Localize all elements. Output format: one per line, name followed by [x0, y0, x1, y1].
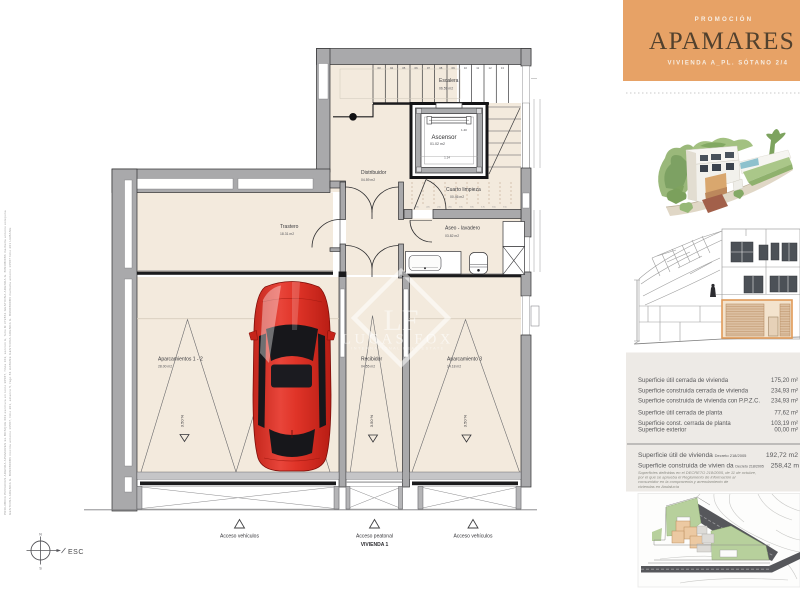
svg-text:Aseo - lavadero: Aseo - lavadero: [445, 226, 480, 232]
svg-text:04.59 m2: 04.59 m2: [361, 178, 375, 182]
svg-text:3.50 %: 3.50 %: [463, 414, 468, 427]
svg-text:192,72 m2: 192,72 m2: [766, 452, 798, 459]
svg-text:08: 08: [439, 66, 443, 70]
svg-text:Superficie construida de vivie: Superficie construida de vivien da Decre…: [638, 463, 764, 470]
svg-text:Superficie exterior: Superficie exterior: [638, 427, 686, 433]
svg-text:3.50 %: 3.50 %: [369, 414, 374, 427]
svg-text:234,93 m²: 234,93 m²: [771, 388, 798, 394]
svg-text:03: 03: [377, 66, 381, 70]
svg-text:3.50 %: 3.50 %: [180, 414, 185, 427]
svg-text:Aparcamiento 3: Aparcamiento 3: [447, 357, 482, 363]
svg-text:Trastero: Trastero: [280, 224, 299, 230]
svg-text:INTERNATIONAL REAL ESTATE: INTERNATIONAL REAL ESTATE: [351, 347, 445, 351]
svg-text:11: 11: [476, 66, 479, 70]
svg-text:VIVIENDA A_PL. SÓTANO 2/4: VIVIENDA A_PL. SÓTANO 2/4: [668, 59, 789, 67]
svg-text:Recibidor: Recibidor: [361, 357, 382, 363]
svg-text:258,42 m: 258,42 m: [771, 463, 800, 470]
svg-text:77,62 m²: 77,62 m²: [774, 411, 798, 417]
svg-text:Superficie construida de vivie: Superficie construida de vivienda con P.…: [638, 399, 761, 405]
svg-text:06: 06: [415, 66, 419, 70]
svg-text:04: 04: [390, 66, 394, 70]
svg-text:234,93 m²: 234,93 m²: [771, 399, 798, 405]
svg-text:00.46 m2: 00.46 m2: [450, 195, 464, 199]
svg-text:175,20 m²: 175,20 m²: [771, 378, 798, 384]
svg-text:Superficie construida cerrada: Superficie construida cerrada de viviend…: [638, 388, 749, 394]
svg-text:14.18 m2: 14.18 m2: [447, 365, 461, 369]
svg-text:103,19 m²: 103,19 m²: [771, 421, 798, 427]
svg-text:13: 13: [501, 66, 505, 70]
svg-text:Ascensor: Ascensor: [431, 135, 456, 141]
svg-text:Acceso vehículos: Acceso vehículos: [454, 534, 493, 540]
svg-text:viviendas en Andalucía: viviendas en Andalucía: [638, 484, 680, 489]
svg-text:Cuarto limpieza: Cuarto limpieza: [446, 187, 481, 193]
svg-text:06.59 m2: 06.59 m2: [439, 87, 453, 91]
svg-text:Superficie útil cerrada de viv: Superficie útil cerrada de vivienda: [638, 378, 729, 384]
svg-text:05: 05: [402, 66, 406, 70]
svg-text:LUCAS FOX: LUCAS FOX: [342, 332, 454, 348]
svg-text:28.00 m2: 28.00 m2: [158, 365, 172, 369]
svg-text:Superficie const. cerrada de p: Superficie const. cerrada de planta: [638, 421, 731, 427]
svg-text:APAMARES: APAMARES: [649, 26, 795, 55]
svg-text:Acceso vehículos: Acceso vehículos: [220, 534, 259, 540]
svg-text:VIVIENDA 1: VIVIENDA 1: [361, 542, 389, 548]
svg-text:10: 10: [464, 66, 468, 70]
svg-text:Acceso peatonal: Acceso peatonal: [356, 534, 393, 540]
svg-text:Escalera: Escalera: [439, 78, 459, 84]
svg-text:1.40: 1.40: [461, 128, 467, 132]
svg-text:03.82 m2: 03.82 m2: [445, 234, 459, 238]
svg-text:00,00 m²: 00,00 m²: [774, 427, 798, 433]
svg-text:ESC: ESC: [68, 549, 84, 556]
svg-text:12: 12: [489, 66, 493, 70]
svg-text:Superficie útil cerrada de pla: Superficie útil cerrada de planta: [638, 411, 723, 417]
svg-text:07: 07: [427, 66, 431, 70]
svg-text:Aparcamientos 1 - 2: Aparcamientos 1 - 2: [158, 357, 203, 363]
svg-text:Superficie útil de vivienda De: Superficie útil de vivienda Decreto 218/…: [638, 452, 747, 459]
svg-text:01.02 m2: 01.02 m2: [430, 142, 445, 146]
svg-text:GESTIONA ADENDA G. B9N0B00: GESTIONA ADENDA G. B9N0B00B6 inscrita an…: [8, 227, 12, 515]
svg-text:Distribuidor: Distribuidor: [361, 170, 387, 176]
svg-text:09: 09: [452, 66, 456, 70]
svg-text:1.14: 1.14: [444, 155, 450, 159]
svg-text:04.55 m2: 04.55 m2: [361, 365, 375, 369]
svg-text:PROMOCIÓN: PROMOCIÓN: [695, 15, 754, 23]
svg-text:PROHIBIDA PRIVADAS ADENDA: PROHIBIDA PRIVADAS ADENDA APAMARES EL BO…: [3, 210, 7, 515]
svg-text:18.31 m2: 18.31 m2: [280, 232, 294, 236]
